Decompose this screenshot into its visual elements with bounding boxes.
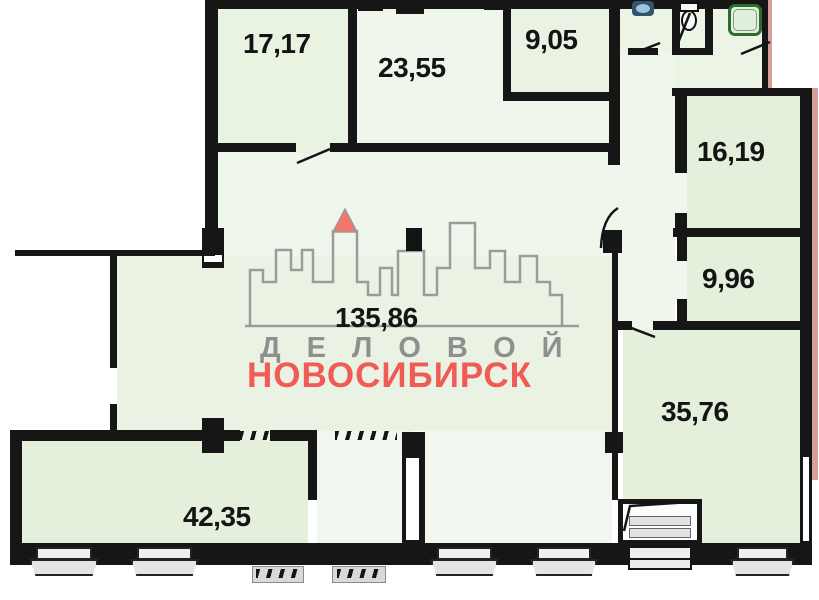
chimney [406, 228, 422, 251]
room-area-label: 35,76 [661, 396, 729, 428]
door-swing [632, 43, 660, 54]
room-area-label: 42,35 [183, 501, 251, 533]
room-area-label: 17,17 [243, 28, 311, 60]
roof-triangle [333, 209, 357, 232]
door-swing-arc [601, 208, 618, 248]
room-area-label: 23,55 [378, 52, 446, 84]
floor-plan: ДЕЛОВОЙ НОВОСИБИРСК 17,17 23,55 9,05 16,… [0, 0, 819, 600]
room-area-label: 9,96 [702, 263, 755, 295]
door-swing [297, 149, 330, 163]
door-swing [621, 324, 655, 337]
room-area-label: 135,86 [335, 302, 418, 334]
room-area-label: 9,05 [525, 24, 578, 56]
stair-diagonal [624, 502, 690, 531]
room-area-label: 16,19 [697, 136, 765, 168]
door-swing [741, 42, 770, 54]
door-swing [676, 13, 690, 48]
watermark-word-bottom: НОВОСИБИРСК [247, 356, 532, 396]
